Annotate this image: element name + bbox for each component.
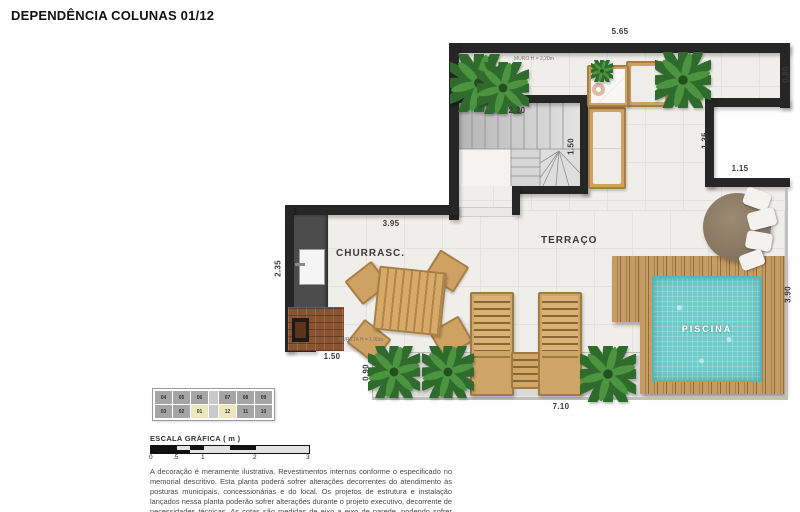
dim-stairs-width: 2.20 (503, 106, 531, 115)
dim-recess-width: 1.15 (726, 164, 754, 173)
keyplan-unit-10: 10 (255, 405, 272, 418)
keyplan-unit-09: 09 (255, 391, 272, 404)
note-parapet-height: MURETA H = 1,00m (338, 337, 383, 343)
page-title: DEPENDÊNCIA COLUNAS 01/12 (11, 8, 214, 23)
keyplan-unit-03: 03 (155, 405, 172, 418)
staircase (459, 103, 580, 186)
wall-recess-bottom (705, 178, 790, 187)
dim-recess-height: 1.35 (701, 127, 710, 155)
scale-segment (177, 450, 190, 454)
scale-tick: .5 (173, 454, 178, 461)
plant (368, 346, 420, 398)
keyplan-core (209, 405, 218, 418)
pool-label: PISCINA (682, 324, 733, 334)
lounger-side-table (511, 352, 540, 389)
graphic-scale: ESCALA GRÁFICA ( m ) 0 .5 1 2 3 (150, 434, 320, 463)
scale-label: ESCALA GRÁFICA ( m ) (150, 434, 320, 443)
keyplan-unit-05: 05 (173, 391, 190, 404)
note-wall-height: MURO H = 2,20m (514, 56, 554, 62)
keyplan-unit-12-highlighted: 12 (219, 405, 236, 418)
dim-bbq-width: 3.95 (377, 219, 405, 228)
dim-right-top: 0.80 (782, 61, 791, 89)
dim-stairs-height: 1.50 (567, 133, 576, 161)
dim-bbq-height: 2.35 (274, 255, 283, 283)
scale-bar (150, 445, 310, 454)
keyplan-unit-07: 07 (219, 391, 236, 404)
sun-lounger (470, 292, 514, 396)
label-terrace: TERRAÇO (541, 235, 597, 246)
scale-tick: 0 (149, 454, 153, 461)
dim-bbq-bottom: 1.50 (318, 352, 346, 361)
keyplan-unit-01-highlighted: 01 (191, 405, 208, 418)
dim-pool-side: 3.90 (784, 281, 793, 309)
keyplan-unit-08: 08 (237, 391, 254, 404)
plant (580, 346, 636, 402)
wall-top (449, 43, 790, 53)
disclaimer-text: A decoração é meramente ilustrativa. Rev… (150, 467, 452, 512)
bbq-sink (299, 249, 325, 285)
bbq-faucet (295, 263, 305, 266)
label-barbecue: CHURRASC. (336, 248, 405, 259)
scale-tick: 2 (253, 454, 257, 461)
key-plan: 04 05 06 07 08 09 03 02 01 12 11 10 (152, 388, 275, 421)
floor-plan-page: DEPENDÊNCIA COLUNAS 01/12 PISCINA (0, 0, 800, 512)
door-threshold (459, 207, 514, 217)
swimming-pool: PISCINA (652, 276, 762, 382)
wall-mid (285, 205, 459, 215)
sofa (588, 107, 626, 189)
plant (655, 52, 711, 108)
dim-top-width: 5.65 (606, 27, 634, 36)
keyplan-unit-11: 11 (237, 405, 254, 418)
keyplan-unit-04: 04 (155, 391, 172, 404)
keyplan-unit-02: 02 (173, 405, 190, 418)
keyplan-core (209, 391, 218, 404)
wall-stairs-step (512, 186, 520, 215)
bbq-firebox-inner (295, 322, 306, 338)
scale-segment (151, 446, 177, 453)
scale-segment (230, 446, 256, 450)
scale-tick: 3 (306, 454, 310, 461)
wall-stairs-right (580, 95, 588, 194)
dim-planter-height: 0.90 (362, 359, 371, 387)
wall-recess-top (705, 98, 790, 107)
cup (596, 87, 601, 92)
sun-lounger (538, 292, 582, 396)
plant (422, 346, 474, 398)
scale-segment (190, 446, 204, 450)
potted-plant (591, 60, 613, 82)
scale-tick: 1 (201, 454, 205, 461)
scale-ticks: 0 .5 1 2 3 (150, 454, 310, 463)
pool-deck-wing (612, 256, 642, 322)
dining-table (373, 266, 447, 337)
keyplan-unit-06: 06 (191, 391, 208, 404)
dim-bottom-width: 7.10 (547, 402, 575, 411)
wall-stairs-bottom (512, 186, 588, 194)
